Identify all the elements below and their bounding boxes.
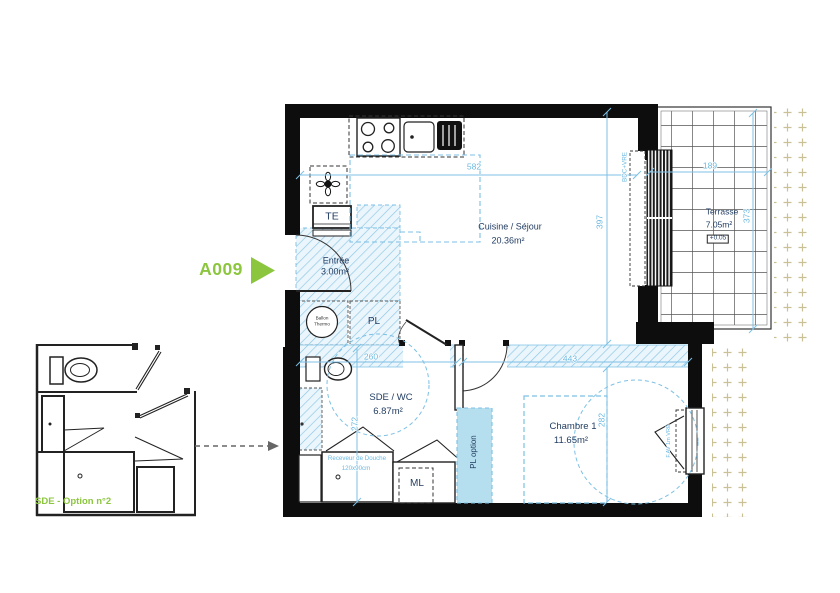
room-area-chambre: 11.65m² xyxy=(554,436,588,446)
water-heater-label-line2: Thermo xyxy=(314,323,330,328)
terrace xyxy=(657,107,771,329)
option-detail-label: SDE - Option n°2 xyxy=(35,497,111,507)
dim-282: 282 xyxy=(598,413,607,427)
dim-272: 272 xyxy=(351,417,360,431)
dim-582: 582 xyxy=(467,163,481,172)
room-name-entree: Entrée xyxy=(323,256,350,265)
floor-plan-drawing xyxy=(0,0,840,593)
bed-zone xyxy=(524,396,607,503)
dim-373: 373 xyxy=(743,209,752,223)
electrical-panel-label: TE xyxy=(325,211,338,222)
floor-plan-page: A009 SDE - Option n°2 Cuisine / Séjour 2… xyxy=(0,0,840,593)
dim-443: 443 xyxy=(563,355,577,364)
closet-label: PL xyxy=(368,317,380,328)
unit-label: A009 xyxy=(199,260,243,278)
room-name-sde: SDE / WC xyxy=(369,393,412,403)
shower-label-line1: Receveur de Douche xyxy=(328,456,386,463)
toilet-bowl xyxy=(325,358,352,380)
unit-marker-triangle xyxy=(251,257,275,284)
dim-189: 189 xyxy=(703,162,717,171)
option-detail xyxy=(36,343,196,516)
option-toilet-bowl xyxy=(65,358,97,382)
option-washing-machine xyxy=(137,467,174,512)
dim-260: 260 xyxy=(364,353,378,362)
shower-label-line2: 120x90cm xyxy=(342,466,371,473)
option-cabinet xyxy=(42,396,64,452)
bay-window-label: BDC+VRE xyxy=(623,152,630,182)
room-name-chambre: Chambre 1 xyxy=(550,422,597,432)
room-area-cuisine: 20.36m² xyxy=(491,236,524,245)
vmc-fan-icon xyxy=(316,172,339,195)
terrasse-level-badge: +0.05 xyxy=(707,235,729,244)
washing-machine-label: ML xyxy=(410,479,424,490)
room-area-sde: 6.87m² xyxy=(373,407,403,417)
room-area-entree: 3.00m² xyxy=(321,267,349,276)
sink xyxy=(404,122,434,152)
bedroom-window-label: F.AV 1m VRE xyxy=(667,424,673,457)
bedroom-window xyxy=(655,408,704,474)
room-name-terrasse: Terrasse xyxy=(706,208,739,217)
option-link-arrow xyxy=(195,441,279,451)
toilet-tank xyxy=(306,357,320,381)
closet-option-label: PL option xyxy=(470,435,478,469)
room-area-terrasse: 7.05m² xyxy=(706,221,732,230)
sde-door-leaf xyxy=(406,320,447,345)
option-toilet-tank xyxy=(50,357,63,384)
dim-397: 397 xyxy=(596,215,605,229)
room-name-cuisine: Cuisine / Séjour xyxy=(478,222,542,231)
